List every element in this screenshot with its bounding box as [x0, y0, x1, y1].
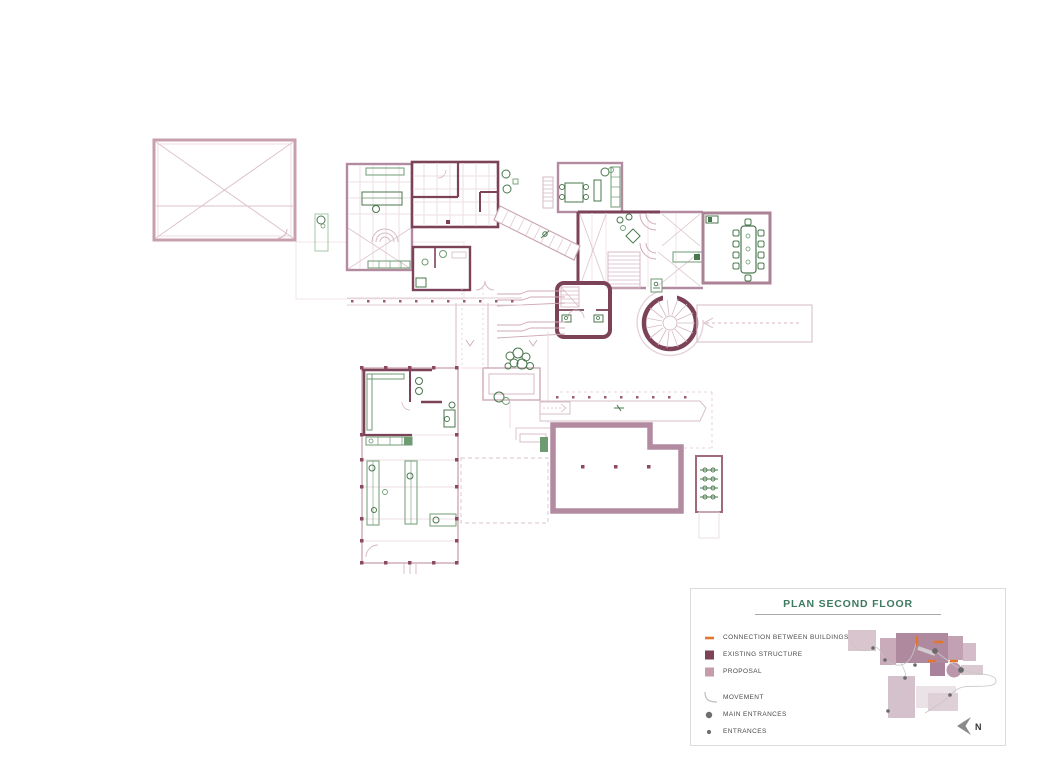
bathroom-room: [413, 247, 494, 290]
planter-small: [315, 214, 328, 251]
north-arrow: N: [955, 715, 991, 737]
connection-dash-icon: [703, 632, 719, 644]
existing-structure-room: [412, 162, 498, 227]
legend-item-main-entrances: MAIN ENTRANCES: [703, 706, 849, 723]
south-hall: [553, 425, 681, 511]
legend-label: EXISTING STRUCTURE: [723, 651, 802, 658]
legend-label: CONNECTION BETWEEN BUILDINGS: [723, 634, 849, 641]
exterior-stair: [543, 177, 553, 208]
north-label: N: [975, 722, 982, 732]
main-entrance-dot-icon: [703, 709, 719, 721]
legend-item-proposal: PROPOSAL: [703, 663, 849, 680]
legend-label: MOVEMENT: [723, 694, 764, 701]
pool-courtyard: [483, 348, 540, 405]
legend-item-connection: CONNECTION BETWEEN BUILDINGS: [703, 629, 849, 646]
title-underline: [755, 614, 941, 615]
link-ramps: [347, 288, 565, 368]
legend-item-movement: MOVEMENT: [703, 689, 849, 706]
existing-structure-swatch-icon: [703, 649, 719, 661]
kitchen-dining-room: [558, 163, 622, 212]
west-building-room: [347, 164, 412, 270]
legend-label: ENTRANCES: [723, 728, 767, 735]
key-plan-minimap: [843, 623, 1003, 725]
spiral-staircase: [637, 291, 703, 355]
legend-box: PLAN SECOND FLOOR CONNECTION BETWEEN BUI…: [690, 588, 1006, 746]
legend-item-entrances: ENTRANCES: [703, 723, 849, 740]
entrance-dot-icon: [703, 726, 719, 738]
plan-title: PLAN SECOND FLOOR: [691, 598, 1005, 610]
courtyard-lines: [461, 332, 552, 523]
architectural-sheet: PLAN SECOND FLOOR CONNECTION BETWEEN BUI…: [0, 0, 1040, 780]
legend-label: PROPOSAL: [723, 668, 762, 675]
conference-room: [703, 213, 770, 283]
diagonal-bridge: [494, 206, 580, 260]
proposal-swatch-icon: [703, 666, 719, 678]
legend-items: CONNECTION BETWEEN BUILDINGS EXISTING ST…: [703, 629, 849, 740]
legend-item-existing: EXISTING STRUCTURE: [703, 646, 849, 663]
east-hall: [578, 212, 703, 288]
east-walkway: [697, 305, 812, 342]
movement-line-icon: [703, 692, 719, 704]
legend-label: MAIN ENTRANCES: [723, 711, 787, 718]
planter-east: [696, 456, 722, 538]
southwest-building: [360, 366, 459, 574]
lounge-furniture: [502, 170, 518, 193]
